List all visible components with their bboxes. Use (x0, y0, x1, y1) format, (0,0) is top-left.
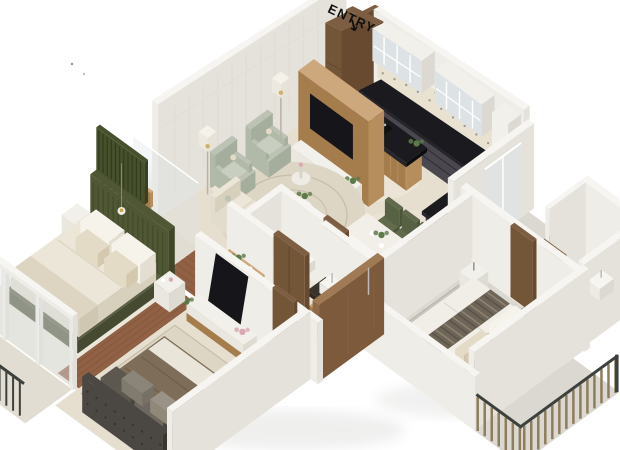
floorplan-3d-render: ENTRY ↓ (0, 0, 620, 450)
render-specks (71, 63, 85, 75)
floorplan-scene (0, 0, 620, 450)
